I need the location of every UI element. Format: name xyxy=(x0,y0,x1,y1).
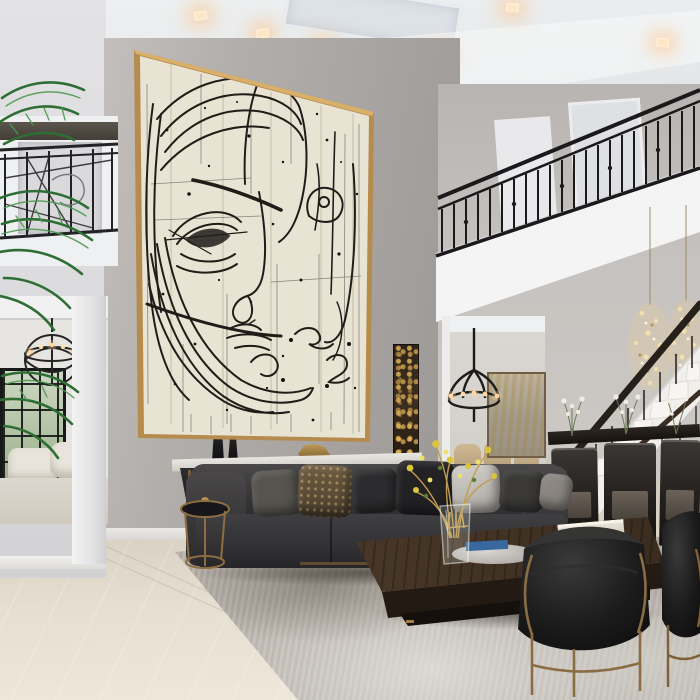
palm-plant xyxy=(0,38,118,488)
sofa-seam xyxy=(330,518,332,562)
table-gold-foot xyxy=(406,620,414,623)
side-table-gold xyxy=(178,496,232,572)
white-flower-arrangements xyxy=(544,388,700,440)
recessed-light xyxy=(656,37,670,47)
barrel-chairs xyxy=(470,505,700,700)
barrel-chair-front xyxy=(518,527,650,697)
throw-pillow-bronze xyxy=(297,464,354,519)
line-art-painting xyxy=(131,44,377,448)
living-room-photo xyxy=(0,0,700,700)
barrel-chair-right xyxy=(662,511,700,687)
throw-pillow-gray xyxy=(250,468,301,517)
recessed-light xyxy=(506,2,520,12)
recessed-light xyxy=(194,10,208,20)
